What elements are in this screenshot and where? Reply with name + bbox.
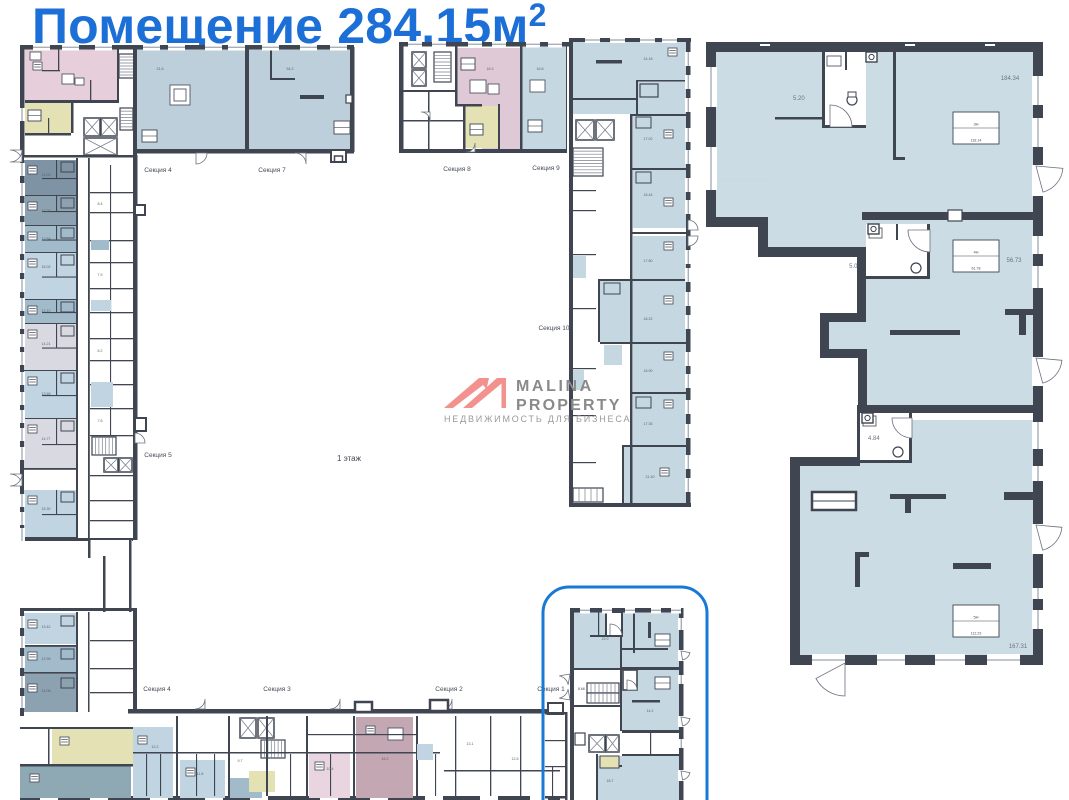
- svg-text:Секция 4: Секция 4: [143, 686, 171, 693]
- svg-text:15.9: 15.9: [602, 637, 609, 641]
- svg-text:12.84: 12.84: [42, 237, 51, 241]
- svg-text:13.42: 13.42: [42, 625, 51, 629]
- svg-text:167.31: 167.31: [1009, 644, 1028, 650]
- svg-text:Секция 4: Секция 4: [144, 167, 172, 174]
- svg-text:14.77: 14.77: [42, 437, 51, 441]
- svg-text:18.22: 18.22: [644, 317, 653, 321]
- svg-text:Секция 3: Секция 3: [263, 686, 291, 693]
- svg-text:61.78: 61.78: [972, 266, 981, 270]
- svg-text:13.65: 13.65: [42, 392, 51, 396]
- svg-text:НЕДВИЖИМОСТЬ ДЛЯ БИЗНЕСА: НЕДВИЖИМОСТЬ ДЛЯ БИЗНЕСА: [444, 414, 631, 424]
- svg-text:12.6: 12.6: [512, 757, 519, 761]
- svg-text:5Н: 5Н: [973, 614, 978, 619]
- svg-text:16.2: 16.2: [382, 757, 389, 761]
- svg-text:MALINA: MALINA: [516, 378, 594, 395]
- svg-text:PROPERTY: PROPERTY: [516, 397, 622, 414]
- svg-text:12.95: 12.95: [42, 657, 51, 661]
- svg-text:Секция 5: Секция 5: [144, 452, 172, 459]
- svg-text:Секция 7: Секция 7: [258, 167, 286, 174]
- svg-text:184.34: 184.34: [1001, 76, 1020, 82]
- svg-text:3Н: 3Н: [973, 121, 978, 126]
- svg-text:16.44: 16.44: [644, 193, 653, 197]
- svg-text:14.08: 14.08: [42, 689, 51, 693]
- svg-text:14.93: 14.93: [42, 173, 51, 177]
- svg-text:4.84: 4.84: [868, 436, 880, 442]
- svg-text:Секция 10: Секция 10: [538, 325, 569, 332]
- svg-text:8.4: 8.4: [98, 202, 103, 206]
- svg-text:12.2: 12.2: [152, 745, 159, 749]
- svg-text:4Н: 4Н: [973, 249, 978, 254]
- svg-text:13.1: 13.1: [467, 742, 474, 746]
- svg-text:54.2: 54.2: [287, 67, 294, 71]
- svg-text:7.9: 7.9: [98, 273, 103, 277]
- svg-text:118.14: 118.14: [971, 138, 982, 142]
- svg-text:24.18: 24.18: [644, 57, 653, 61]
- svg-text:18.3: 18.3: [487, 67, 494, 71]
- svg-text:12.10: 12.10: [42, 309, 51, 313]
- svg-text:18.7: 18.7: [607, 779, 614, 783]
- svg-text:Секция 2: Секция 2: [435, 686, 463, 693]
- svg-text:17.35: 17.35: [644, 422, 653, 426]
- svg-text:11.8: 11.8: [197, 772, 204, 776]
- svg-text:7.6: 7.6: [98, 419, 103, 423]
- svg-text:15.30: 15.30: [42, 507, 51, 511]
- svg-text:16.8: 16.8: [537, 67, 544, 71]
- svg-text:9.7: 9.7: [238, 759, 243, 763]
- svg-text:17.80: 17.80: [644, 259, 653, 263]
- svg-text:21.6: 21.6: [157, 67, 164, 71]
- svg-text:Секция 8: Секция 8: [443, 166, 471, 173]
- svg-text:14.21: 14.21: [42, 342, 51, 346]
- svg-text:8.66: 8.66: [578, 687, 585, 691]
- svg-text:Секция 1: Секция 1: [537, 686, 565, 693]
- svg-text:16.90: 16.90: [644, 369, 653, 373]
- svg-text:15.02: 15.02: [42, 265, 51, 269]
- svg-text:112.23: 112.23: [971, 631, 982, 635]
- svg-text:56.73: 56.73: [1006, 258, 1022, 264]
- svg-text:8.2: 8.2: [98, 349, 103, 353]
- svg-text:1 этаж: 1 этаж: [337, 454, 362, 463]
- svg-text:21.40: 21.40: [646, 475, 655, 479]
- svg-text:Секция 9: Секция 9: [532, 165, 560, 172]
- svg-text:13.20: 13.20: [42, 209, 51, 213]
- svg-text:17.02: 17.02: [644, 137, 653, 141]
- svg-text:5.20: 5.20: [793, 96, 805, 102]
- svg-text:14.2: 14.2: [647, 709, 654, 713]
- svg-text:10.4: 10.4: [327, 767, 334, 771]
